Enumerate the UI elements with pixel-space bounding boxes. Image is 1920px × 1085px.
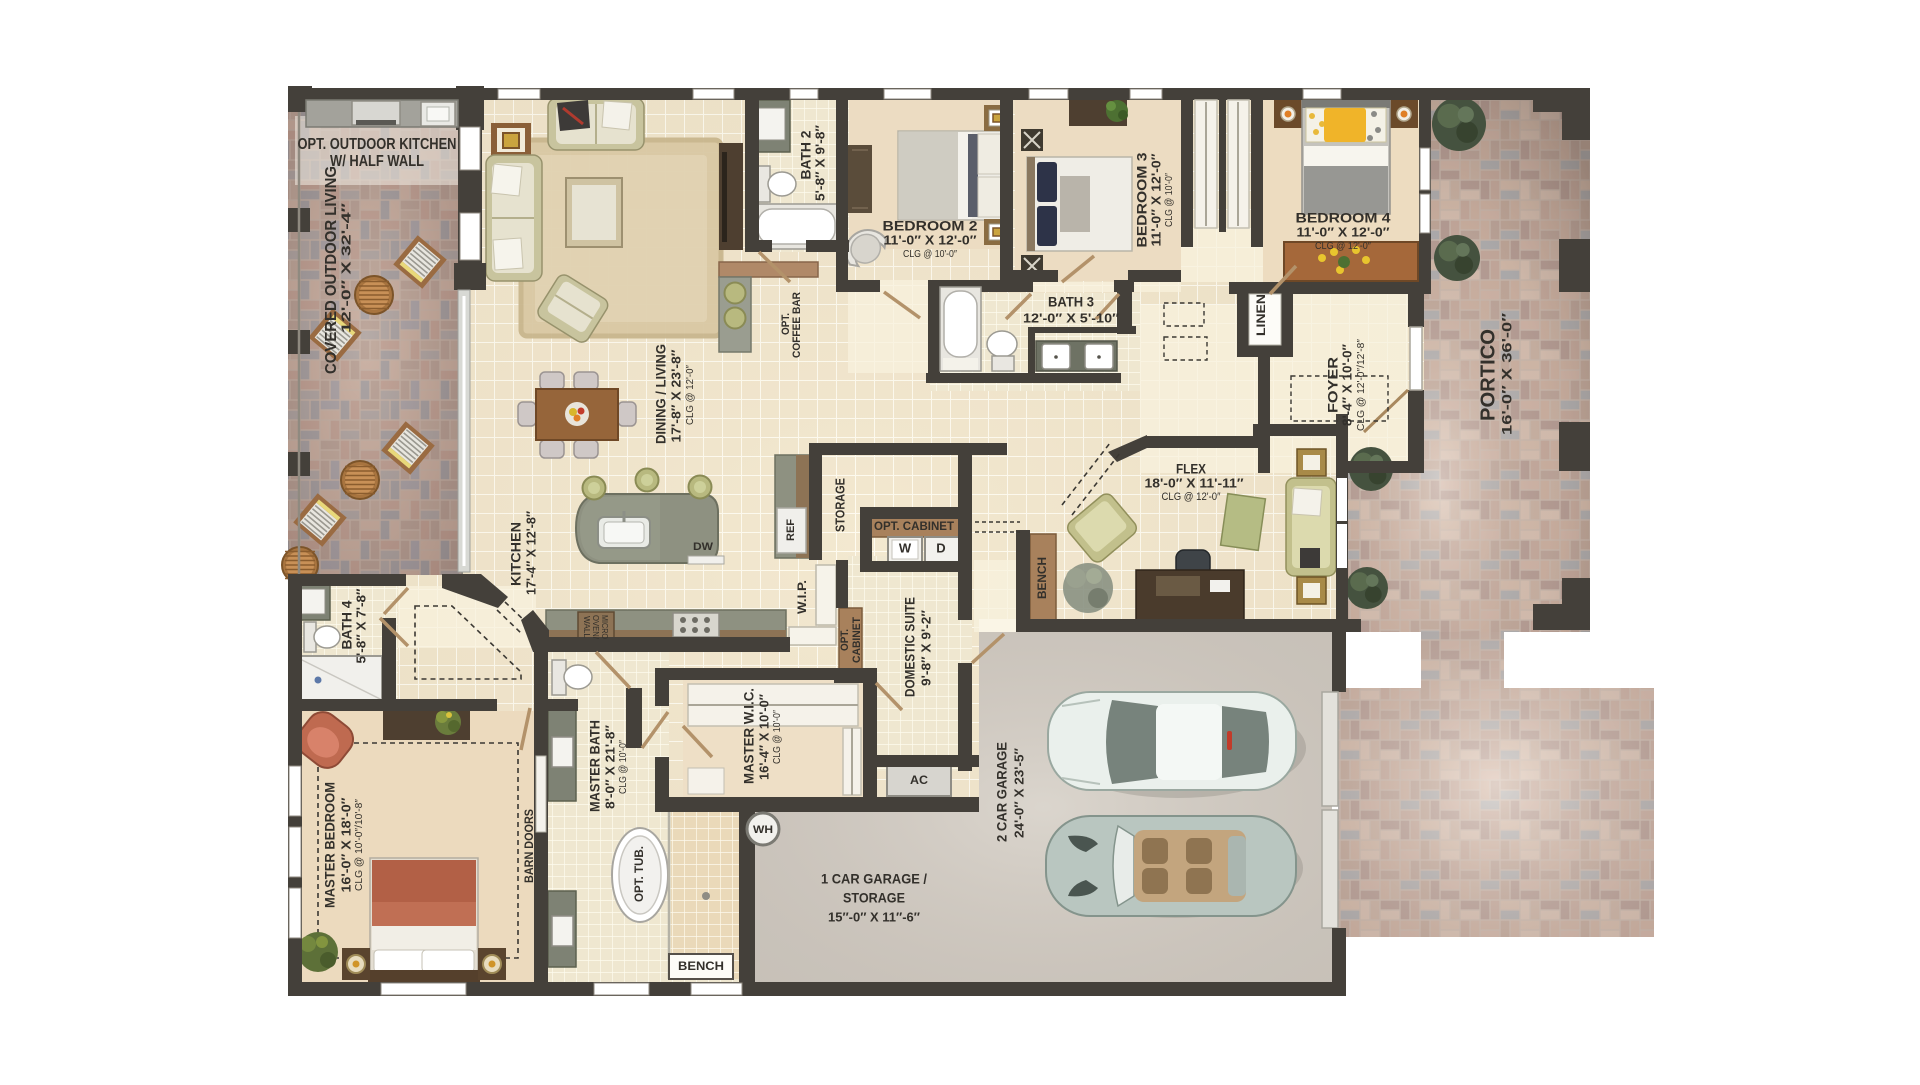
svg-text:D: D [936,540,945,555]
svg-text:8'-0″ X 21'-8″: 8'-0″ X 21'-8″ [603,725,617,809]
svg-text:CLG @ 12'-0″: CLG @ 12'-0″ [1315,240,1371,252]
svg-text:12'-0″ X 32'-4″: 12'-0″ X 32'-4″ [338,203,353,333]
svg-text:16'-4″ X 10'-0″: 16'-4″ X 10'-0″ [757,694,771,780]
svg-text:CLG @ 12'-0″: CLG @ 12'-0″ [1162,491,1221,503]
svg-text:18'-0″ X 11'-11″: 18'-0″ X 11'-11″ [1145,476,1244,490]
svg-text:W: W [899,540,912,555]
svg-text:BATH 3: BATH 3 [1048,294,1094,310]
svg-text:5'-8″ X 7'-8″: 5'-8″ X 7'-8″ [354,588,368,663]
svg-text:16'-0″ X 36'-0″: 16'-0″ X 36'-0″ [1500,312,1515,435]
svg-text:BEDROOM 4: BEDROOM 4 [1296,210,1391,226]
svg-text:CLG @ 12'-0″/12'-8″: CLG @ 12'-0″/12'-8″ [1355,339,1367,431]
svg-text:8'-4″ X 10'-0″: 8'-4″ X 10'-0″ [1340,344,1354,426]
svg-text:OPT. OUTDOOR KITCHEN: OPT. OUTDOOR KITCHEN [298,136,457,153]
svg-text:MASTER BEDROOM: MASTER BEDROOM [322,782,338,908]
svg-text:BENCH: BENCH [1035,557,1049,599]
svg-text:LINEN: LINEN [1256,294,1268,336]
svg-text:CLG @ 12'-0″: CLG @ 12'-0″ [684,365,696,425]
svg-text:STORAGE: STORAGE [843,890,905,906]
svg-text:WH: WH [753,824,773,836]
svg-text:CABINET: CABINET [851,617,863,663]
svg-text:BEDROOM 3: BEDROOM 3 [1134,152,1150,247]
svg-text:MICRO: MICRO [600,615,609,639]
svg-text:24'-0″ X 23'-5″: 24'-0″ X 23'-5″ [1012,748,1026,838]
svg-text:17'-4″ X 12'-8″: 17'-4″ X 12'-8″ [524,511,538,595]
svg-text:BEDROOM 2: BEDROOM 2 [883,218,978,234]
svg-text:W.I.P.: W.I.P. [795,580,809,614]
svg-text:12'-0″ X 5'-10″: 12'-0″ X 5'-10″ [1023,310,1119,325]
svg-text:BATH 4: BATH 4 [339,600,355,649]
svg-text:REF: REF [785,519,797,541]
svg-text:WALL: WALL [582,616,591,639]
svg-text:9'-8″ X 9'-2″: 9'-8″ X 9'-2″ [919,610,933,686]
svg-text:17'-8″ X 23'-8″: 17'-8″ X 23'-8″ [669,349,683,442]
svg-text:FOYER: FOYER [1325,357,1341,413]
svg-text:FLEX: FLEX [1176,462,1206,477]
svg-text:BENCH: BENCH [678,959,724,973]
svg-text:CLG @ 10'-0″/10'-8″: CLG @ 10'-0″/10'-8″ [353,799,365,891]
svg-text:CLG @ 10'-0″: CLG @ 10'-0″ [1163,173,1175,227]
svg-text:BARN DOORS: BARN DOORS [522,809,536,883]
svg-text:OPT. TUB.: OPT. TUB. [632,846,646,902]
svg-text:OPT.: OPT. [839,629,851,651]
svg-text:MASTER BATH: MASTER BATH [587,720,603,812]
svg-text:1 CAR GARAGE /: 1 CAR GARAGE / [821,871,927,887]
svg-text:PORTICO: PORTICO [1477,329,1499,421]
svg-text:CLG @ 10'-0″: CLG @ 10'-0″ [903,248,957,260]
svg-text:STORAGE: STORAGE [832,478,847,532]
svg-text:CLG @ 10'-0″: CLG @ 10'-0″ [771,710,783,764]
svg-text:OPT. CABINET: OPT. CABINET [874,519,955,533]
svg-text:DINING / LIVING: DINING / LIVING [653,344,669,444]
svg-text:MASTER W.I.C.: MASTER W.I.C. [741,688,757,784]
svg-text:2 CAR GARAGE: 2 CAR GARAGE [994,742,1010,842]
svg-text:W/ HALF WALL: W/ HALF WALL [330,153,424,170]
svg-text:CLG @ 10'-0″: CLG @ 10'-0″ [617,740,629,794]
svg-text:AC: AC [910,773,928,787]
svg-text:OVEN/: OVEN/ [591,615,600,640]
svg-text:15″-0″ X 11″-6″: 15″-0″ X 11″-6″ [828,910,920,924]
svg-text:11'-0″ X 12'-0″: 11'-0″ X 12'-0″ [884,233,977,247]
svg-text:DW: DW [693,541,714,553]
svg-text:COFFEE BAR: COFFEE BAR [791,292,803,358]
svg-text:DOMESTIC SUITE: DOMESTIC SUITE [902,597,918,697]
svg-text:11'-0″ X 12'-0″: 11'-0″ X 12'-0″ [1149,154,1163,247]
svg-text:KITCHEN: KITCHEN [508,522,524,586]
svg-text:BATH 2: BATH 2 [798,130,814,179]
svg-text:16'-0″ X 18'-0″: 16'-0″ X 18'-0″ [339,797,353,892]
svg-text:5'-8″ X 9'-8″: 5'-8″ X 9'-8″ [813,125,827,201]
svg-text:11'-0″ X 12'-0″: 11'-0″ X 12'-0″ [1297,225,1390,239]
